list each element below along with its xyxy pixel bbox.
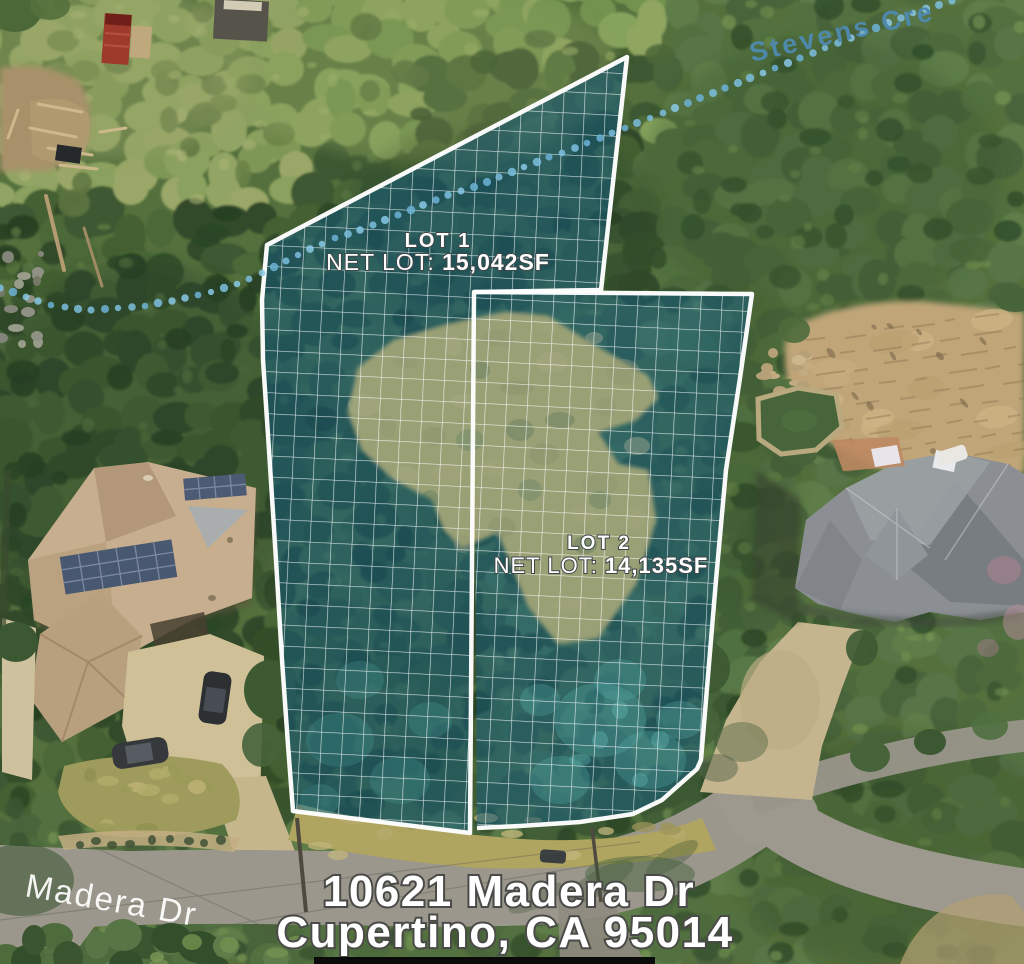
svg-text:Cupertino, CA 95014: Cupertino, CA 95014: [276, 908, 733, 957]
svg-text:LOT 2: LOT 2: [567, 533, 631, 554]
svg-text:NET LOT: 14,135SF: NET LOT: 14,135SF: [494, 553, 709, 578]
svg-text:NET LOT: 15,042SF: NET LOT: 15,042SF: [326, 249, 550, 275]
